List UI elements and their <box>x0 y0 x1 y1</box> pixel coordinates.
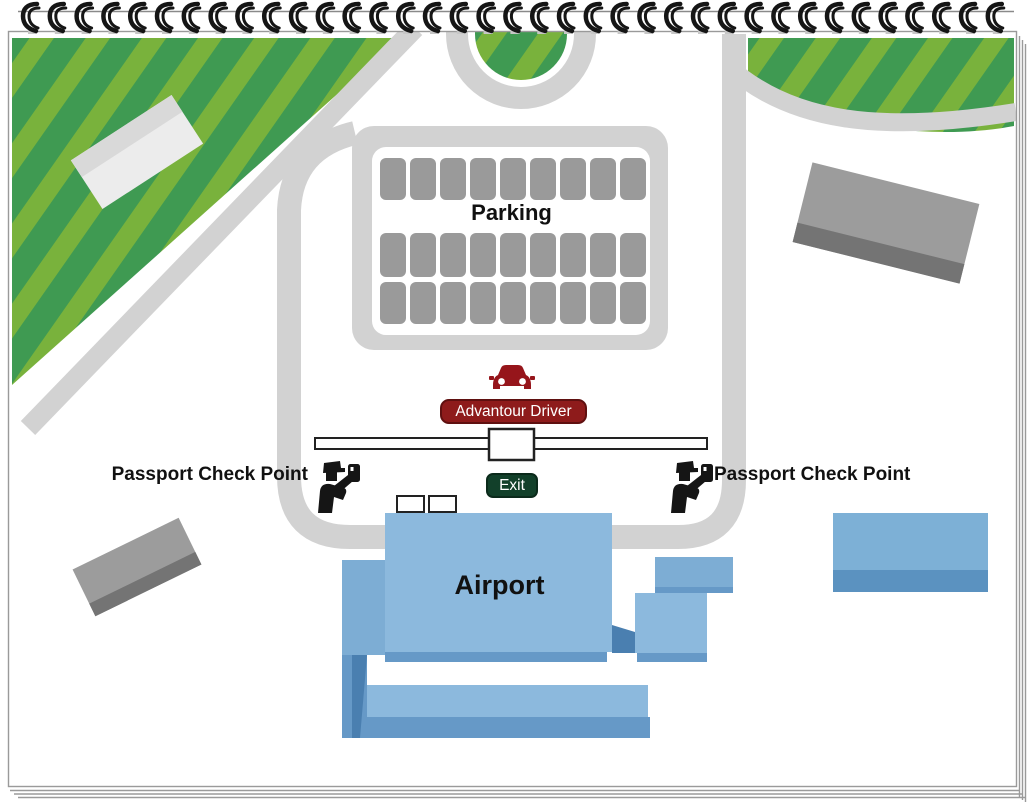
parking-spot <box>470 158 496 200</box>
parking-spot <box>620 158 646 200</box>
spiral-ring-icon <box>77 4 93 34</box>
parking-spot <box>470 282 496 324</box>
spiral-ring-icon <box>425 4 441 34</box>
parking-spot <box>380 282 406 324</box>
spiral-ring-icon <box>318 4 334 34</box>
spiral-binding <box>23 4 1004 34</box>
spiral-ring-icon <box>211 4 227 34</box>
spiral-ring-icon <box>773 4 789 34</box>
driver-pickup-label: Advantour Driver <box>455 403 571 421</box>
spiral-ring-icon <box>103 4 119 34</box>
passport-officer-left-icon <box>318 461 360 513</box>
gray-building-top-right <box>793 162 980 283</box>
passport-officer-right-icon <box>671 461 713 513</box>
parking-spot <box>500 233 526 277</box>
car-icon <box>489 365 535 389</box>
spiral-ring-icon <box>559 4 575 34</box>
spiral-ring-icon <box>827 4 843 34</box>
spiral-ring-icon <box>693 4 709 34</box>
exit-badge: Exit <box>486 473 538 498</box>
spiral-ring-icon <box>586 4 602 34</box>
spiral-ring-icon <box>988 4 1004 34</box>
spiral-ring-icon <box>800 4 816 34</box>
spiral-ring-icon <box>479 4 495 34</box>
spiral-ring-icon <box>452 4 468 34</box>
parking-spot <box>560 233 586 277</box>
parking-spot <box>530 282 556 324</box>
parking-spot <box>590 158 616 200</box>
parking-spot <box>560 282 586 324</box>
passport-check-point-right-label: Passport Check Point <box>714 464 944 486</box>
parking-spot <box>440 233 466 277</box>
spiral-ring-icon <box>184 4 200 34</box>
notebook-airport-map: Parking Advantour Driver Exit Passport C… <box>0 0 1028 805</box>
parking-spot <box>530 158 556 200</box>
parking-spot <box>440 282 466 324</box>
spiral-ring-icon <box>130 4 146 34</box>
parking-spots <box>380 158 646 324</box>
spiral-ring-icon <box>237 4 253 34</box>
terminal-door-right <box>429 496 456 512</box>
parking-spot <box>500 282 526 324</box>
spiral-ring-icon <box>639 4 655 34</box>
gray-building-bottom-left <box>73 518 202 616</box>
spiral-ring-icon <box>961 4 977 34</box>
gate-booth <box>489 429 534 460</box>
parking-spot <box>410 233 436 277</box>
spiral-ring-icon <box>398 4 414 34</box>
spiral-ring-icon <box>291 4 307 34</box>
spiral-ring-icon <box>854 4 870 34</box>
exit-label: Exit <box>499 477 525 495</box>
parking-spot <box>410 282 436 324</box>
parking-spot <box>380 233 406 277</box>
airport-label: Airport <box>387 570 612 601</box>
spiral-ring-icon <box>23 4 39 34</box>
parking-spot <box>530 233 556 277</box>
parking-spot <box>560 158 586 200</box>
terminal-door-left <box>397 496 424 512</box>
spiral-ring-icon <box>264 4 280 34</box>
spiral-ring-icon <box>157 4 173 34</box>
spiral-ring-icon <box>505 4 521 34</box>
passport-check-point-left-label: Passport Check Point <box>98 464 308 486</box>
driver-pickup-badge: Advantour Driver <box>440 399 587 424</box>
spiral-ring-icon <box>371 4 387 34</box>
parking-spot <box>470 233 496 277</box>
parking-label: Parking <box>373 200 650 226</box>
spiral-ring-icon <box>907 4 923 34</box>
parking-spot <box>620 233 646 277</box>
parking-spot <box>440 158 466 200</box>
spiral-ring-icon <box>881 4 897 34</box>
parking-spot <box>410 158 436 200</box>
spiral-ring-icon <box>613 4 629 34</box>
spiral-ring-icon <box>747 4 763 34</box>
parking-spot <box>590 233 616 277</box>
parking-spot <box>500 158 526 200</box>
blue-building-right <box>833 513 988 592</box>
map-content <box>12 0 1016 738</box>
parking-spot <box>590 282 616 324</box>
spiral-ring-icon <box>50 4 66 34</box>
spiral-ring-icon <box>345 4 361 34</box>
spiral-ring-icon <box>666 4 682 34</box>
spiral-ring-icon <box>720 4 736 34</box>
parking-spot <box>620 282 646 324</box>
spiral-ring-icon <box>532 4 548 34</box>
spiral-ring-icon <box>934 4 950 34</box>
parking-spot <box>380 158 406 200</box>
